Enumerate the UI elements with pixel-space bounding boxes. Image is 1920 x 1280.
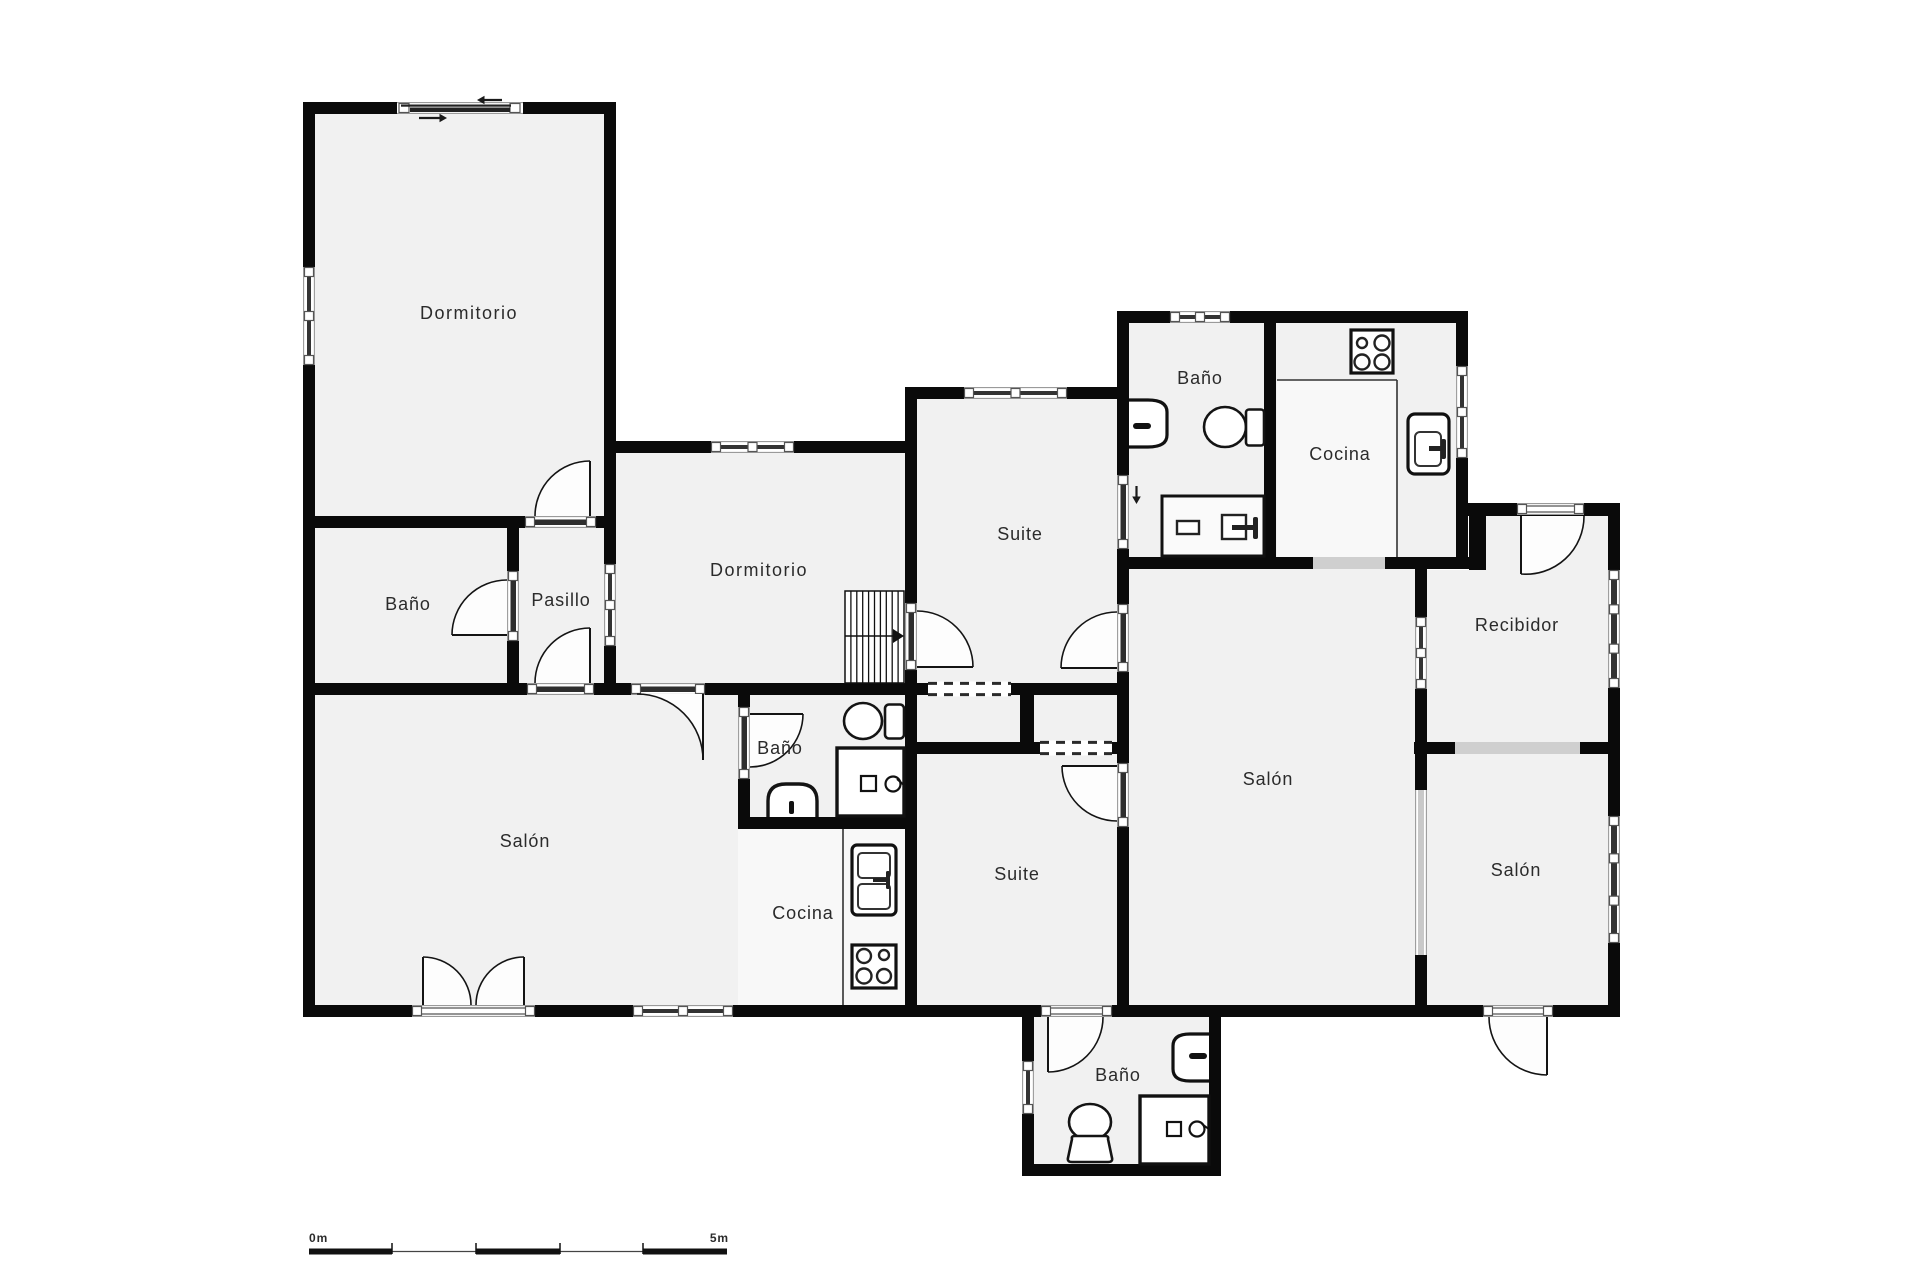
svg-text:Dormitorio: Dormitorio: [710, 560, 808, 580]
svg-text:5m: 5m: [710, 1231, 729, 1245]
svg-text:Recibidor: Recibidor: [1475, 615, 1559, 635]
svg-text:Baño: Baño: [757, 738, 803, 758]
svg-text:0m: 0m: [309, 1231, 328, 1245]
svg-text:Suite: Suite: [997, 524, 1043, 544]
svg-text:Baño: Baño: [1177, 368, 1223, 388]
svg-text:Salón: Salón: [500, 831, 551, 851]
svg-text:Baño: Baño: [1095, 1065, 1141, 1085]
svg-text:Suite: Suite: [994, 864, 1040, 884]
svg-text:Cocina: Cocina: [1309, 444, 1371, 464]
svg-text:Cocina: Cocina: [772, 903, 834, 923]
svg-text:Baño: Baño: [385, 594, 431, 614]
svg-text:Salón: Salón: [1243, 769, 1294, 789]
svg-text:Salón: Salón: [1491, 860, 1542, 880]
svg-text:Dormitorio: Dormitorio: [420, 303, 518, 323]
svg-text:Pasillo: Pasillo: [531, 590, 590, 610]
